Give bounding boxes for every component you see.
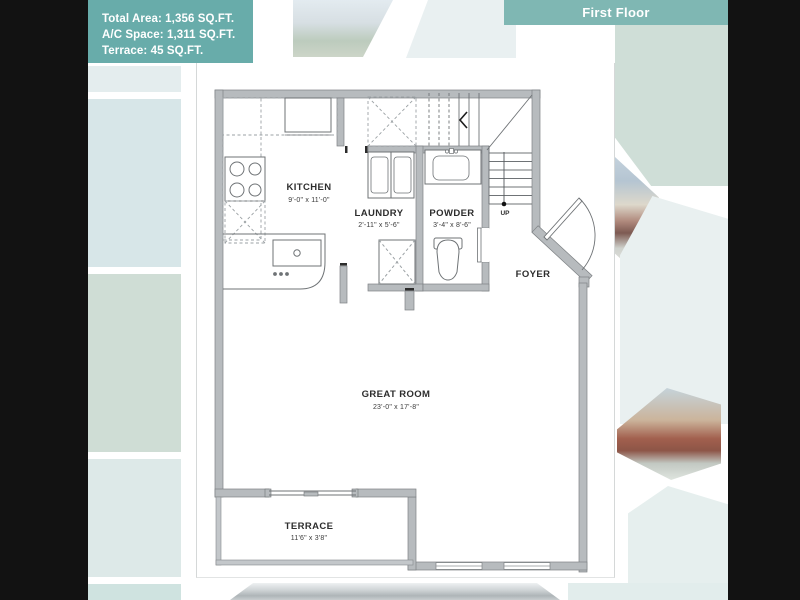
base-cabinet-x xyxy=(225,201,265,243)
understair-storage xyxy=(368,97,416,146)
hexagon-tile xyxy=(88,66,181,92)
room-label-kitchen: KITCHEN xyxy=(286,182,331,193)
floor-plan-svg: KITCHEN 9'-0" x 11'-0" LAUNDRY 2'-11" x … xyxy=(197,63,614,577)
room-label-powder: POWDER xyxy=(429,208,474,219)
ac-space-line: A/C Space: 1,311 SQ.FT. xyxy=(102,27,253,43)
room-dims-kitchen: 9'-0" x 11'-0" xyxy=(288,197,330,204)
hexagon-tile xyxy=(620,196,728,424)
stairs-up-label: UP xyxy=(500,210,510,217)
terrace-line: Terrace: 45 SQ.FT. xyxy=(102,43,253,59)
room-dims-terrace: 11'6" x 3'8" xyxy=(291,535,328,542)
room-label-terrace: TERRACE xyxy=(285,521,334,532)
room-dims-powder: 3'-4" x 8'-6" xyxy=(433,222,471,229)
room-dims-laundry: 2'-11" x 5'-6" xyxy=(358,222,400,229)
hexagon-tile xyxy=(568,583,728,600)
powder-vanity xyxy=(425,149,481,185)
laundry-closet-x xyxy=(379,240,415,284)
screenshot-root: { "header": { "banner": "First Floor" },… xyxy=(0,0,800,600)
photo-tile-trees xyxy=(293,0,393,57)
powder-door xyxy=(478,228,490,262)
floor-banner-label: First Floor xyxy=(582,5,650,20)
interior-walls xyxy=(337,98,489,310)
sliding-door xyxy=(265,489,358,497)
hexagon-tile xyxy=(88,584,181,600)
toilet xyxy=(434,238,462,280)
floor-banner: First Floor xyxy=(504,0,728,25)
kitchen-island xyxy=(223,234,325,289)
room-label-laundry: LAUNDRY xyxy=(355,208,404,219)
refrigerator xyxy=(285,98,331,135)
page-canvas: KITCHEN 9'-0" x 11'-0" LAUNDRY 2'-11" x … xyxy=(88,0,728,600)
floor-plan-sheet: KITCHEN 9'-0" x 11'-0" LAUNDRY 2'-11" x … xyxy=(196,63,615,578)
area-info-box: Total Area: 1,356 SQ.FT. A/C Space: 1,31… xyxy=(88,0,253,63)
room-label-foyer: FOYER xyxy=(516,269,551,280)
room-label-great-room: GREAT ROOM xyxy=(362,389,431,400)
hexagon-tile xyxy=(406,0,516,58)
room-dims-great-room: 23'-0" x 17'-8" xyxy=(373,404,419,411)
stove xyxy=(225,157,265,201)
hexagon-tile xyxy=(615,0,728,186)
hexagon-tile xyxy=(88,274,181,452)
hexagon-tile xyxy=(88,99,181,267)
photo-tile-boat xyxy=(230,583,560,600)
washer-dryer xyxy=(368,152,414,198)
hexagon-tile xyxy=(88,459,181,577)
total-area-line: Total Area: 1,356 SQ.FT. xyxy=(102,11,253,27)
